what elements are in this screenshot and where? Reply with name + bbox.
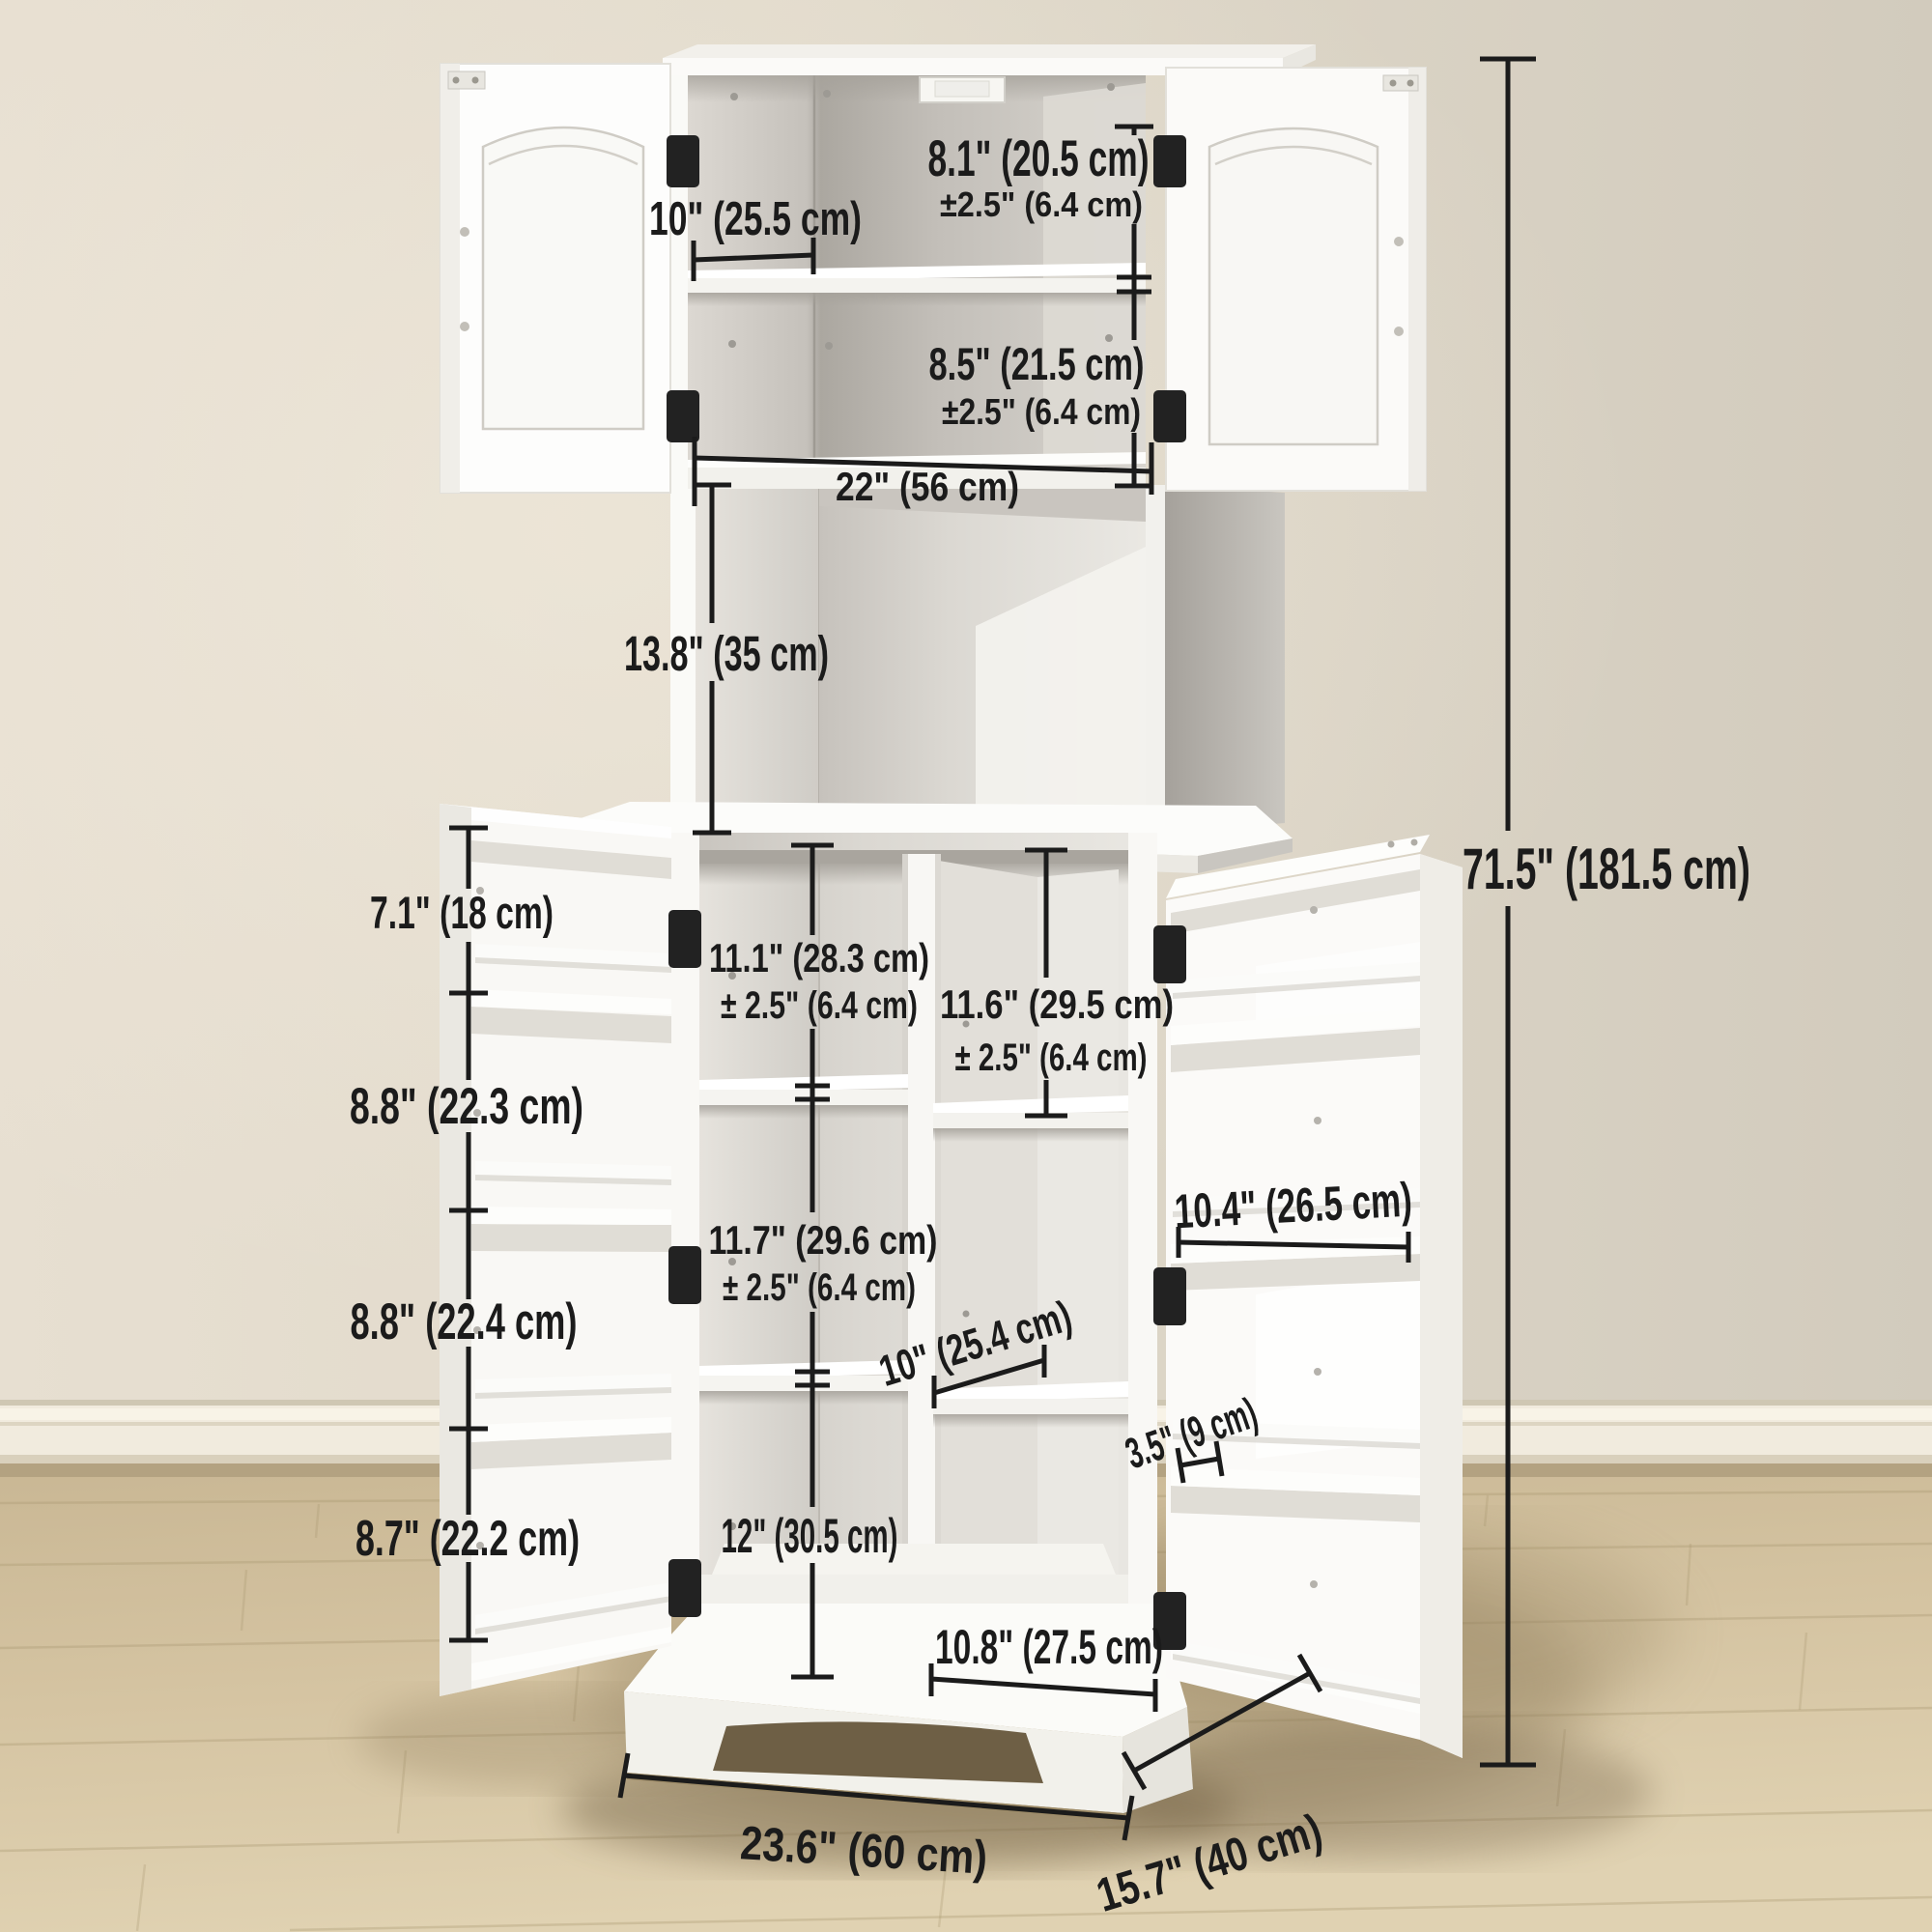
- svg-text:7.1" (18 cm): 7.1" (18 cm): [370, 887, 554, 938]
- svg-text:8.5" (21.5 cm): 8.5" (21.5 cm): [929, 338, 1145, 389]
- svg-text:10" (25.5 cm): 10" (25.5 cm): [649, 193, 862, 245]
- svg-text:71.5" (181.5 cm): 71.5" (181.5 cm): [1463, 837, 1750, 901]
- svg-text:±2.5" (6.4 cm): ±2.5" (6.4 cm): [940, 185, 1143, 224]
- svg-text:11.6" (29.5 cm): 11.6" (29.5 cm): [940, 981, 1174, 1027]
- svg-text:±2.5" (6.4 cm): ±2.5" (6.4 cm): [942, 392, 1141, 433]
- svg-text:8.8" (22.4 cm): 8.8" (22.4 cm): [351, 1293, 578, 1350]
- svg-text:11.1" (28.3 cm): 11.1" (28.3 cm): [709, 935, 929, 980]
- svg-text:22" (56 cm): 22" (56 cm): [836, 464, 1019, 509]
- svg-text:11.7" (29.6 cm): 11.7" (29.6 cm): [709, 1217, 938, 1263]
- svg-text:13.8" (35 cm): 13.8" (35 cm): [624, 626, 829, 681]
- svg-text:10.8" (27.5 cm): 10.8" (27.5 cm): [935, 1620, 1163, 1674]
- svg-text:8.7" (22.2 cm): 8.7" (22.2 cm): [355, 1511, 580, 1567]
- svg-text:± 2.5" (6.4 cm): ± 2.5" (6.4 cm): [723, 1266, 916, 1309]
- svg-text:12" (30.5 cm): 12" (30.5 cm): [722, 1509, 898, 1563]
- svg-text:± 2.5" (6.4 cm): ± 2.5" (6.4 cm): [955, 1037, 1148, 1079]
- svg-text:8.1" (20.5 cm): 8.1" (20.5 cm): [928, 130, 1150, 187]
- svg-text:± 2.5" (6.4 cm): ± 2.5" (6.4 cm): [721, 984, 918, 1027]
- svg-text:8.8" (22.3 cm): 8.8" (22.3 cm): [350, 1078, 583, 1135]
